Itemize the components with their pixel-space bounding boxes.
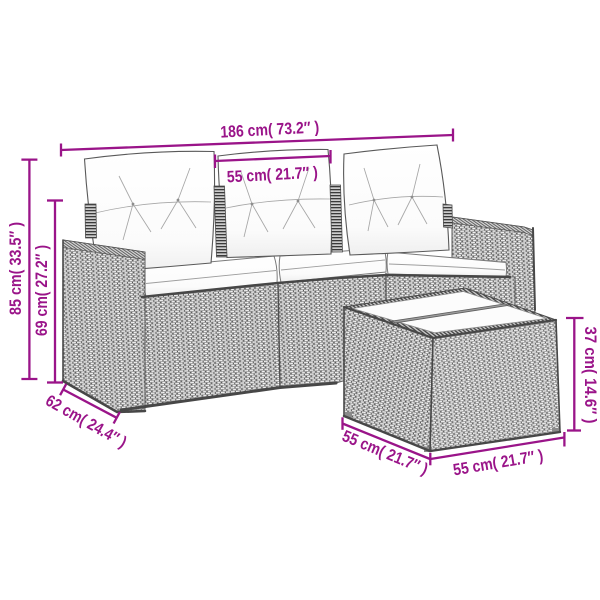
svg-text:55 cm( 21.7″ ): 55 cm( 21.7″ ) xyxy=(452,447,545,480)
svg-text:37 cm( 14.6″ ): 37 cm( 14.6″ ) xyxy=(581,327,599,424)
svg-text:186 cm( 73.2″ ): 186 cm( 73.2″ ) xyxy=(220,118,320,141)
svg-text:85 cm( 33.5″ ): 85 cm( 33.5″ ) xyxy=(7,222,25,315)
svg-text:69 cm( 27.2″ ): 69 cm( 27.2″ ) xyxy=(33,245,51,336)
